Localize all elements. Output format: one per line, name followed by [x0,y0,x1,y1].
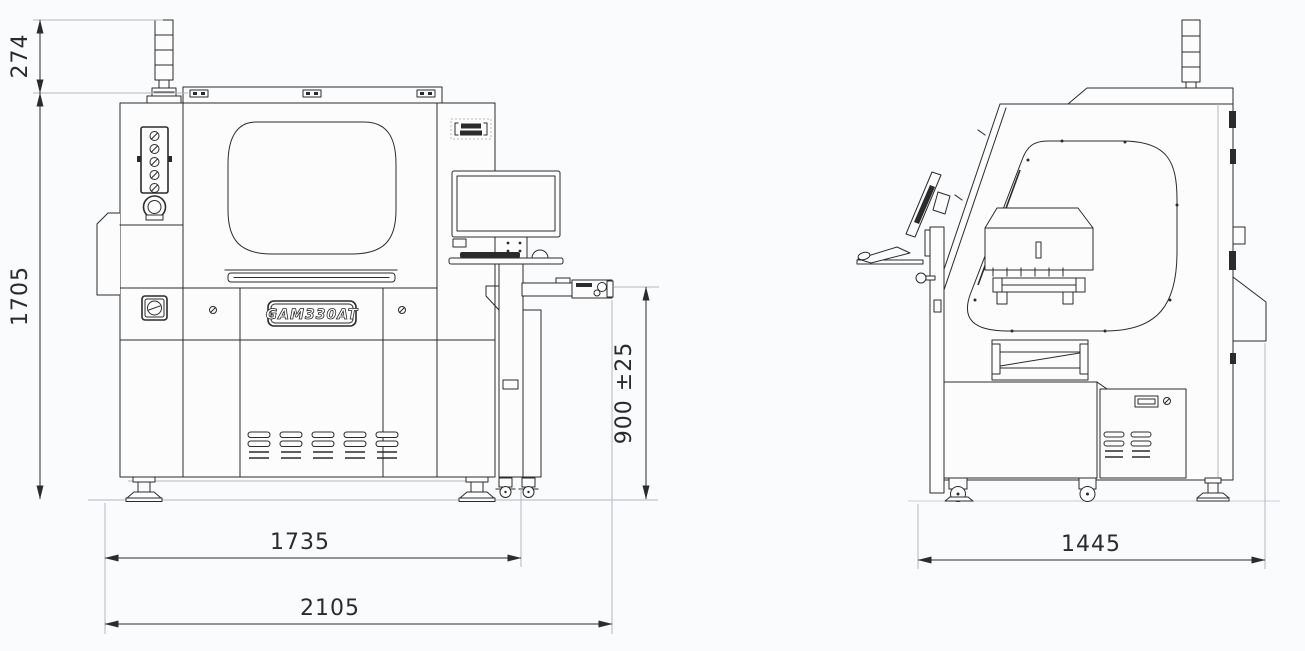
dim-label-1445: 1445 [1061,532,1121,557]
caster-foot-icon [496,478,515,498]
side-view [857,20,1280,502]
dim-label-1735: 1735 [270,530,330,555]
emergency-stop-button [144,196,166,220]
base-cabinet-side [943,382,1186,478]
dim-label-2105: 2105 [300,596,360,621]
main-power-switch [142,296,167,320]
signal-tower-side-icon [1182,20,1200,88]
roof-front [183,87,442,103]
front-view: GAM330AT [88,20,658,502]
dimension-drawing: GAM330AT [0,0,1305,651]
keyboard-tray-front [449,250,563,264]
model-label: GAM330AT [266,307,359,323]
rear-edge-details [1229,111,1266,364]
signal-tower-front-icon [147,20,181,103]
dim-overall-height: 1705 [8,93,40,499]
caster-foot-icon [519,478,538,498]
leveling-foot-icon [1197,478,1229,501]
control-panel [137,127,172,193]
drawing-svg: GAM330AT [0,0,1305,651]
lower-conveyor-side [992,340,1088,380]
monitor-front [452,171,560,237]
caster-icon [1079,478,1096,502]
interior-hood [985,208,1093,304]
dim-label-900: 900 ±25 [612,342,637,444]
model-nameplate: GAM330AT [266,301,359,326]
monitor-post-side [916,227,944,493]
dim-label-274: 274 [8,34,33,79]
dim-label-1705: 1705 [8,266,33,326]
feet-side [945,478,1229,502]
side-protrusion [97,213,120,295]
keyboard-tray-side [857,247,923,264]
output-conveyor [522,278,613,298]
dim-conveyor-height: 900 ±25 [612,287,659,499]
handle-knob [916,273,926,283]
handle-slot [1135,396,1158,407]
caster-icon [945,478,973,502]
output-chute [1233,277,1266,341]
